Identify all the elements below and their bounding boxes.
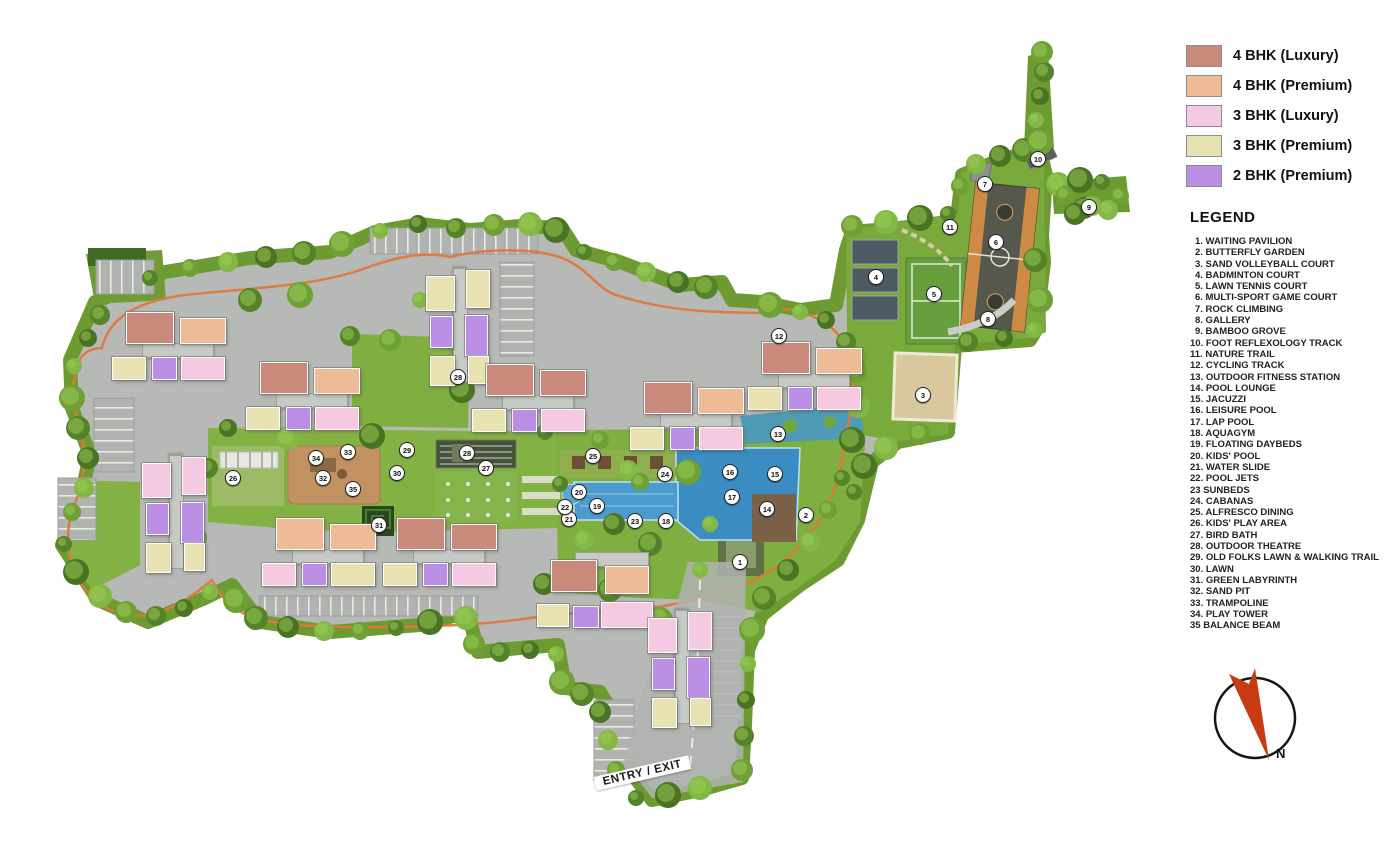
tree-highlight [819, 313, 829, 323]
marker-28: 28 [459, 445, 475, 461]
legend-item: 24. CABANAS [1190, 496, 1398, 507]
unit-legend-item: 2 BHK (Premium) [1186, 164, 1398, 187]
tree-highlight [1058, 188, 1068, 198]
tower-9-block-c [541, 409, 585, 432]
legend-item: 7. ROCK CLIMBING [1190, 304, 1398, 315]
tree-highlight [997, 331, 1007, 341]
tree-highlight [183, 261, 193, 271]
tower-9 [472, 364, 587, 430]
legend-item: 35 BALANCE BEAM [1190, 620, 1398, 631]
marker-19: 19 [589, 498, 605, 514]
tower-9-block-a [486, 364, 534, 396]
tree-highlight [492, 644, 504, 656]
tower-6 [112, 312, 227, 378]
legend-item: 4. BADMINTON COURT [1190, 270, 1398, 281]
marker-5: 5 [926, 286, 942, 302]
legend-item: 15. JACUZZI [1190, 394, 1398, 405]
tree-highlight [79, 449, 93, 463]
tree-highlight [1096, 176, 1104, 184]
legend-item: 16. LEISURE POOL [1190, 405, 1398, 416]
tower-11-block-a [762, 342, 810, 374]
tower-7-block-d [286, 407, 311, 430]
tree-highlight [733, 761, 747, 775]
tree-highlight [240, 290, 256, 306]
tower-3 [383, 518, 498, 584]
tower-4 [262, 518, 377, 584]
tower-7-block-c [315, 407, 359, 430]
tree-highlight [61, 387, 79, 405]
marker-10: 10 [1030, 151, 1046, 167]
tree-highlight [607, 255, 617, 265]
compass-needle-icon [1229, 668, 1269, 760]
tower-5-block-d [146, 543, 171, 573]
legend-item: 25. ALFRESCO DINING [1190, 507, 1398, 518]
tree-highlight [630, 792, 638, 800]
tree-highlight [419, 611, 437, 629]
tree-highlight [794, 306, 802, 314]
bird-bath-lawn [434, 472, 518, 522]
tower-4-block-d [302, 563, 327, 586]
tower-1-block-d [652, 698, 677, 728]
tower-2-block-a [551, 560, 597, 592]
tower-4-block-a [276, 518, 324, 550]
tree-highlight [759, 294, 777, 312]
tower-10-block-a [644, 382, 692, 414]
unit-legend-label: 3 BHK (Luxury) [1233, 108, 1339, 124]
compass: N [1196, 656, 1321, 781]
tower-1-block-b [687, 657, 710, 698]
tower-7-block-a [260, 362, 308, 394]
tree-highlight [909, 207, 927, 225]
tower-1 [648, 610, 710, 726]
tree-highlight [593, 433, 603, 443]
tower-10 [630, 382, 745, 448]
unit-color-swatch [1186, 45, 1222, 67]
tree-highlight [1025, 250, 1041, 266]
tower-6-name [142, 343, 214, 358]
tree-highlight [221, 421, 231, 431]
tree-highlight [657, 784, 675, 802]
marker-4: 4 [868, 269, 884, 285]
legend-item: 29. OLD FOLKS LAWN & WALKING TRAIL [1190, 552, 1398, 563]
marker-28: 28 [450, 369, 466, 385]
marker-16: 16 [722, 464, 738, 480]
marker-26: 26 [225, 470, 241, 486]
legend-item: 2. BUTTERFLY GARDEN [1190, 247, 1398, 258]
tree-highlight [448, 220, 460, 232]
tree-highlight [144, 272, 152, 280]
unit-legend-label: 4 BHK (Premium) [1233, 78, 1352, 94]
marker-8: 8 [980, 311, 996, 327]
tower-8-block-b [465, 315, 488, 356]
marker-27: 27 [478, 460, 494, 476]
tree-highlight [374, 225, 382, 233]
tree-highlight [736, 728, 748, 740]
tree-highlight [65, 561, 83, 579]
legend-item: 6. MULTI-SPORT GAME COURT [1190, 292, 1398, 303]
tree-highlight [1029, 131, 1047, 149]
tree-highlight [390, 622, 398, 630]
tree-highlight [991, 147, 1005, 161]
legend-item: 5. LAWN TENNIS COURT [1190, 281, 1398, 292]
marker-33: 33 [340, 444, 356, 460]
tower-10-block-c [699, 427, 743, 450]
unit-type-legend: 4 BHK (Luxury)4 BHK (Premium)3 BHK (Luxu… [1186, 44, 1398, 187]
tower-7-block-b [314, 368, 360, 394]
compass-rose-icon [1196, 656, 1321, 781]
legend-item: 22. POOL JETS [1190, 473, 1398, 484]
tree-highlight [1029, 289, 1047, 307]
tree-highlight [953, 179, 963, 189]
tower-11-block-b [816, 348, 862, 374]
tree-highlight [742, 658, 750, 666]
tree-highlight [739, 693, 749, 703]
tree-highlight [694, 564, 702, 572]
tower-9-block-d [512, 409, 537, 432]
tower-11 [748, 342, 863, 408]
tower-4-block-e [262, 563, 296, 586]
compass-north-label: N [1276, 746, 1285, 761]
tree-highlight [841, 429, 859, 447]
tree-highlight [572, 684, 588, 700]
tree-highlight [578, 246, 586, 254]
legend-item: 26. KIDS' PLAY AREA [1190, 518, 1398, 529]
tree-highlight [520, 214, 536, 230]
tree-highlight [1069, 169, 1087, 187]
marker-18: 18 [658, 513, 674, 529]
legend-item: 33. TRAMPOLINE [1190, 598, 1398, 609]
tree-highlight [381, 331, 395, 345]
tree-highlight [821, 503, 831, 513]
tower-4-name [292, 549, 364, 564]
tree-highlight [1028, 324, 1036, 332]
tower-4-block-b [330, 524, 376, 550]
tower-2-block-e [537, 604, 569, 627]
tree-highlight [58, 538, 66, 546]
tree-highlight [554, 478, 562, 486]
tower-10-block-b [698, 388, 744, 414]
tree-highlight [638, 264, 650, 276]
tree-highlight [177, 601, 187, 611]
marker-34: 34 [308, 450, 324, 466]
tower-5-block-f [142, 463, 171, 498]
tower-11-block-c [817, 387, 861, 410]
marker-24: 24 [657, 466, 673, 482]
legend-item: 12. CYCLING TRACK [1190, 360, 1398, 371]
tree-highlight [414, 294, 422, 302]
unit-legend-item: 4 BHK (Luxury) [1186, 44, 1398, 67]
tower-3-block-a [397, 518, 445, 550]
tree-highlight [1066, 205, 1080, 219]
tower-5-block-c [184, 543, 205, 571]
tower-2 [537, 552, 655, 628]
tower-4-block-c [331, 563, 375, 586]
marker-22: 22 [557, 499, 573, 515]
tree-highlight [1030, 114, 1038, 122]
tower-9-block-b [540, 370, 586, 396]
tree-highlight [353, 624, 363, 634]
marker-3: 3 [915, 387, 931, 403]
legend-panel: 4 BHK (Luxury)4 BHK (Premium)3 BHK (Luxu… [1186, 44, 1398, 631]
tree-highlight [677, 461, 695, 479]
tree-highlight [1113, 189, 1123, 199]
tree-highlight [669, 273, 683, 287]
tree-highlight [802, 534, 814, 546]
tower-11-block-d [788, 387, 813, 410]
tree-highlight [576, 532, 588, 544]
legend-item: 21. WATER SLIDE [1190, 462, 1398, 473]
unit-color-swatch [1186, 165, 1222, 187]
tree-highlight [485, 216, 499, 230]
legend-item: 18. AQUAGYM [1190, 428, 1398, 439]
tree-highlight [843, 217, 857, 231]
site-plan-map [0, 0, 1180, 852]
tower-5-block-b [181, 502, 204, 543]
tree-highlight [465, 635, 479, 649]
unit-legend-item: 3 BHK (Premium) [1186, 134, 1398, 157]
legend-list: 1. WAITING PAVILION2. BUTTERFLY GARDEN3.… [1186, 236, 1398, 631]
tree-highlight [90, 586, 106, 602]
tower-11-block-e [748, 387, 782, 410]
tree-highlight [294, 243, 310, 259]
marker-12: 12 [771, 328, 787, 344]
legend-item: 30. LAWN [1190, 564, 1398, 575]
tower-1-block-e [652, 658, 675, 690]
tree-highlight [876, 212, 892, 228]
tree-highlight [640, 534, 656, 550]
tree-highlight [696, 277, 712, 293]
marker-32: 32 [315, 470, 331, 486]
tree-highlight [876, 438, 892, 454]
tower-3-block-b [451, 524, 497, 550]
tree-highlight [968, 156, 980, 168]
tower-5 [142, 455, 204, 571]
tower-3-block-c [452, 563, 496, 586]
tower-8-block-f [426, 276, 455, 311]
tree-highlight [278, 428, 294, 444]
legend-item: 20. KIDS' POOL [1190, 451, 1398, 462]
tree-highlight [633, 475, 643, 485]
kids-play-area [212, 446, 284, 506]
marker-20: 20 [571, 484, 587, 500]
tree-highlight [81, 331, 91, 341]
tree-highlight [68, 360, 76, 368]
marker-23: 23 [627, 513, 643, 529]
tower-5-block-e [146, 503, 169, 535]
legend-item: 14. POOL LOUNGE [1190, 383, 1398, 394]
legend-item: 34. PLAY TOWER [1190, 609, 1398, 620]
tree-highlight [591, 703, 605, 717]
outdoor-theatre [436, 440, 516, 468]
tower-11-name [778, 373, 850, 388]
tower-3-block-d [423, 563, 448, 586]
tower-7-block-e [246, 407, 280, 430]
tree-highlight [942, 208, 950, 216]
tree-highlight [911, 425, 925, 439]
tower-7-name [276, 393, 348, 408]
tower-6-block-b [180, 318, 226, 344]
legend-item: 10. FOOT REFLEXOLOGY TRACK [1190, 338, 1398, 349]
marker-31: 31 [371, 517, 387, 533]
tower-6-block-a [126, 312, 174, 344]
tower-10-block-e [630, 427, 664, 450]
tree-highlight [605, 515, 619, 529]
marker-25: 25 [585, 448, 601, 464]
tree-highlight [551, 671, 569, 689]
tree-highlight [331, 233, 349, 251]
unit-color-swatch [1186, 135, 1222, 157]
legend-item: 1. WAITING PAVILION [1190, 236, 1398, 247]
tree-highlight [220, 254, 232, 266]
tree-highlight [754, 588, 770, 604]
tower-2-block-c [601, 602, 653, 628]
tree-highlight [68, 418, 84, 434]
tree-highlight [148, 608, 160, 620]
tree-highlight [342, 328, 354, 340]
unit-legend-item: 3 BHK (Luxury) [1186, 104, 1398, 127]
marker-11: 11 [942, 219, 958, 235]
unit-legend-item: 4 BHK (Premium) [1186, 74, 1398, 97]
tree-highlight [92, 307, 104, 319]
tree-highlight [204, 586, 212, 594]
tower-8-block-a [466, 270, 490, 308]
tower-1-block-c [690, 698, 711, 726]
marker-17: 17 [724, 489, 740, 505]
tower-2-block-b [605, 566, 649, 594]
legend-item: 31. GREEN LABYRINTH [1190, 575, 1398, 586]
tree-highlight [289, 284, 307, 302]
marker-13: 13 [770, 426, 786, 442]
marker-35: 35 [345, 481, 361, 497]
marker-2: 2 [798, 507, 814, 523]
tower-3-block-e [383, 563, 417, 586]
legend-item: 9. BAMBOO GROVE [1190, 326, 1398, 337]
tree-highlight [741, 619, 759, 637]
tree-highlight [600, 732, 612, 744]
tower-1-block-a [688, 612, 712, 650]
marker-1: 1 [732, 554, 748, 570]
tree-highlight [411, 217, 421, 227]
tree-highlight [704, 518, 712, 526]
tower-6-block-c [181, 357, 225, 380]
tree-highlight [316, 623, 328, 635]
site-plan: 1234567891011121314151617181920212223242… [0, 0, 1400, 852]
legend-item: 8. GALLERY [1190, 315, 1398, 326]
tree-highlight [836, 472, 844, 480]
tree-highlight [361, 425, 379, 443]
tree-highlight [76, 480, 88, 492]
tower-7 [246, 362, 361, 428]
tree-highlight [1033, 89, 1043, 99]
tree-highlight [523, 643, 533, 653]
legend-item: 17. LAP POOL [1190, 417, 1398, 428]
tower-5-block-a [182, 457, 206, 495]
legend-item: 3. SAND VOLLEYBALL COURT [1190, 259, 1398, 270]
marker-30: 30 [389, 465, 405, 481]
legend-item: 28. OUTDOOR THEATRE [1190, 541, 1398, 552]
tower-2-block-d [573, 606, 599, 628]
tree-highlight [117, 603, 131, 617]
legend-item: 11. NATURE TRAIL [1190, 349, 1398, 360]
tower-3-name [413, 549, 485, 564]
tree-highlight [456, 608, 472, 624]
tower-9-block-e [472, 409, 506, 432]
tower-1-block-f [648, 618, 677, 653]
unit-legend-label: 4 BHK (Luxury) [1233, 48, 1339, 64]
tower-6-block-e [112, 357, 146, 380]
tree-highlight [1036, 64, 1048, 76]
tree-highlight [225, 589, 243, 607]
tower-8-block-e [430, 316, 453, 348]
tree-highlight [779, 561, 793, 575]
sand-pit-play-area [288, 446, 380, 504]
tree-highlight [1100, 202, 1112, 214]
tree-highlight [279, 618, 293, 632]
tower-10-name [660, 413, 732, 428]
tower-6-block-d [152, 357, 177, 380]
unit-color-swatch [1186, 75, 1222, 97]
unit-legend-label: 2 BHK (Premium) [1233, 168, 1352, 184]
tree-highlight [620, 462, 632, 474]
legend-item: 19. FLOATING DAYBEDS [1190, 439, 1398, 450]
tree-highlight [848, 486, 856, 494]
tree-highlight [853, 455, 871, 473]
legend-item: 32. SAND PIT [1190, 586, 1398, 597]
legend-item: 13. OUTDOOR FITNESS STATION [1190, 372, 1398, 383]
tree-highlight [1033, 43, 1047, 57]
marker-9: 9 [1081, 199, 1097, 215]
marker-14: 14 [759, 501, 775, 517]
tree-highlight [690, 778, 706, 794]
tree-highlight [246, 608, 262, 624]
marker-29: 29 [399, 442, 415, 458]
marker-7: 7 [977, 176, 993, 192]
tree-highlight [550, 648, 558, 656]
marker-6: 6 [988, 234, 1004, 250]
tree-highlight [65, 505, 75, 515]
tree-highlight [257, 248, 271, 262]
marker-15: 15 [767, 466, 783, 482]
tower-9-name [502, 395, 574, 410]
unit-color-swatch [1186, 105, 1222, 127]
unit-legend-label: 3 BHK (Premium) [1233, 138, 1352, 154]
tree-highlight [545, 219, 563, 237]
legend-item: 27. BIRD BATH [1190, 530, 1398, 541]
tree-highlight [960, 334, 972, 346]
tower-10-block-d [670, 427, 695, 450]
legend-title: LEGEND [1190, 209, 1398, 226]
legend-item: 23 SUNBEDS [1190, 485, 1398, 496]
